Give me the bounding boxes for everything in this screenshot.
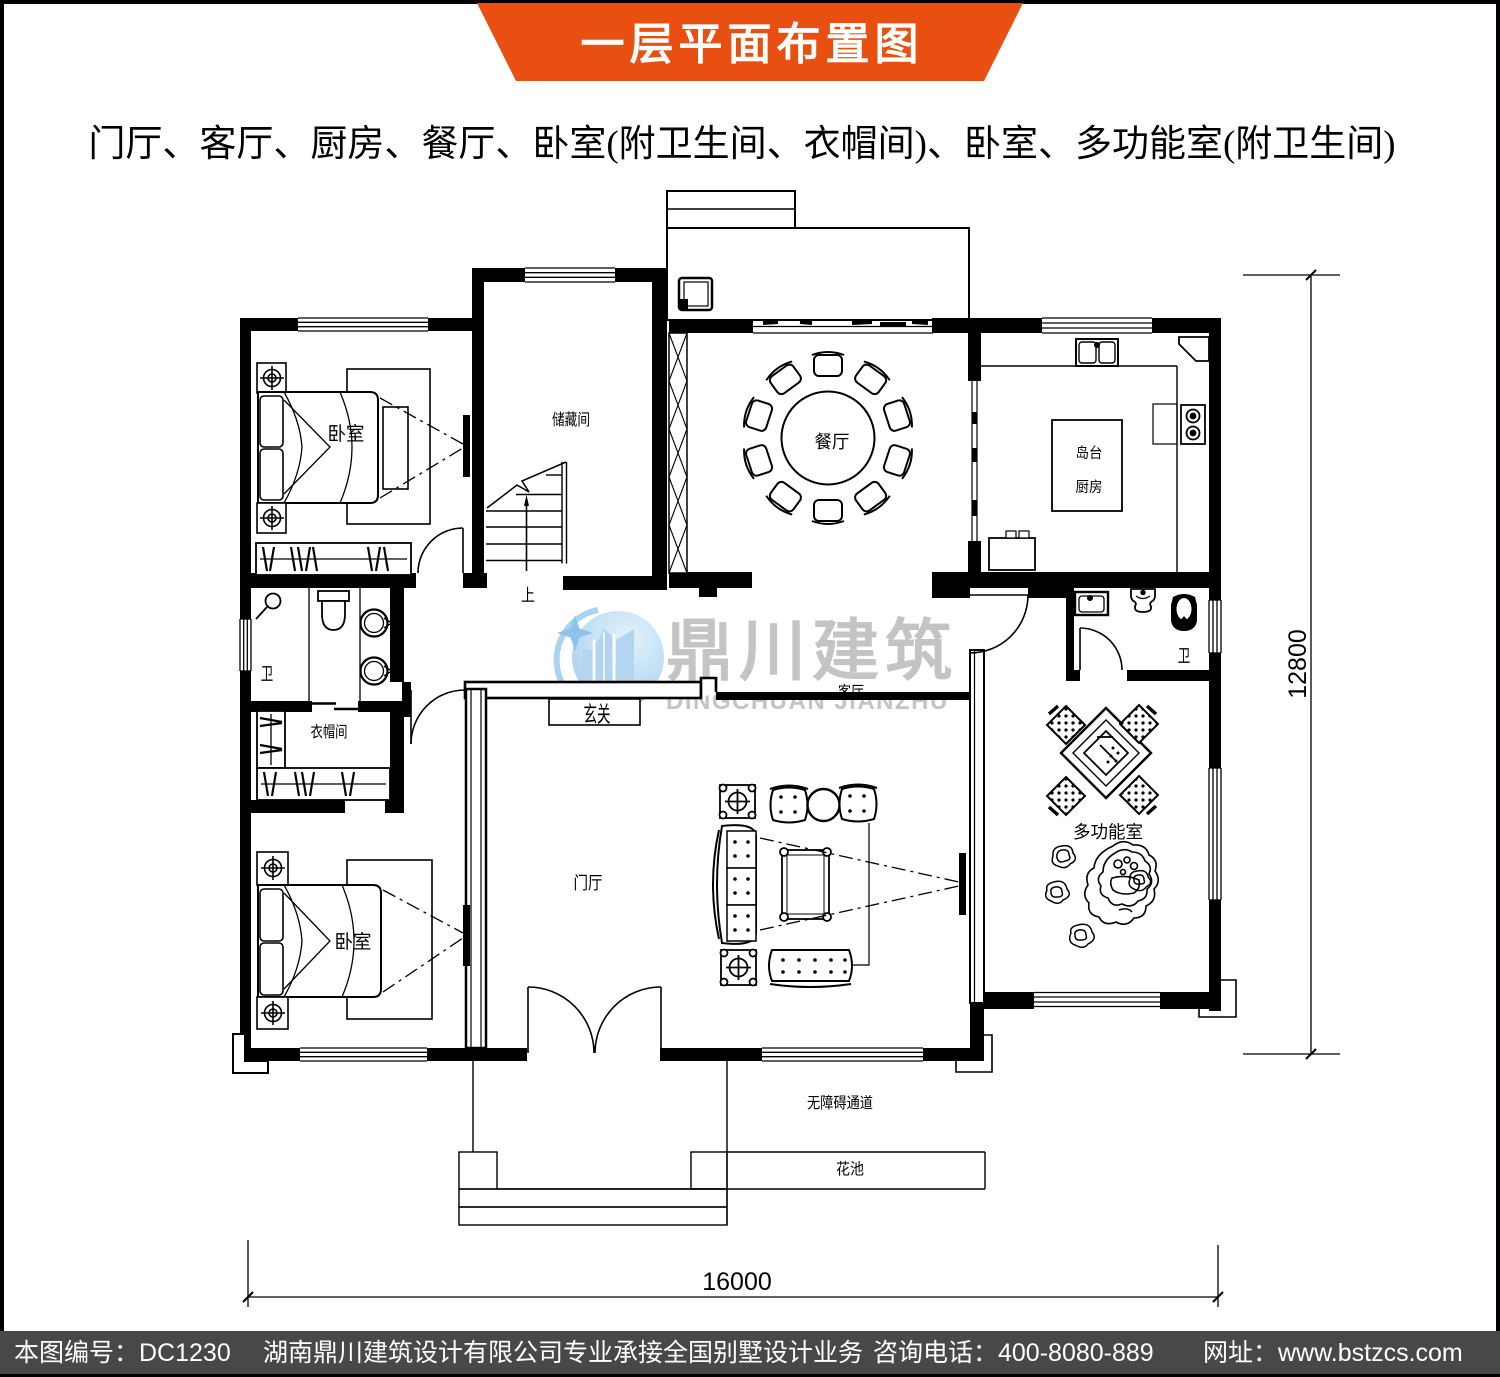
svg-text:无障碍通道: 无障碍通道 — [807, 1094, 873, 1112]
svg-text:网址：www.bstzcs.com: 网址：www.bstzcs.com — [1203, 1339, 1463, 1367]
svg-text:花池: 花池 — [836, 1160, 864, 1178]
svg-text:餐厅: 餐厅 — [815, 432, 850, 452]
svg-text:多功能室: 多功能室 — [1073, 822, 1143, 842]
svg-text:衣帽间: 衣帽间 — [311, 723, 348, 741]
svg-text:客厅: 客厅 — [838, 683, 864, 701]
svg-text:12800: 12800 — [1284, 629, 1312, 699]
svg-text:储藏间: 储藏间 — [552, 411, 590, 429]
svg-text:厨房: 厨房 — [1076, 479, 1103, 496]
svg-text:玄关: 玄关 — [584, 702, 611, 727]
svg-text:卫: 卫 — [1178, 646, 1191, 666]
svg-text:卧室: 卧室 — [335, 931, 372, 953]
svg-text:本图编号：DC1230: 本图编号：DC1230 — [14, 1339, 231, 1367]
svg-text:咨询电话：400-8080-889: 咨询电话：400-8080-889 — [873, 1339, 1154, 1367]
svg-text:上: 上 — [521, 586, 535, 605]
svg-text:湖南鼎川建筑设计有限公司专业承接全国别墅设计业务: 湖南鼎川建筑设计有限公司专业承接全国别墅设计业务 — [263, 1339, 863, 1367]
svg-text:卧室: 卧室 — [328, 423, 365, 445]
svg-text:门厅、客厅、厨房、餐厅、卧室(附卫生间、衣帽间)、卧室、多功: 门厅、客厅、厨房、餐厅、卧室(附卫生间、衣帽间)、卧室、多功能室(附卫生间) — [88, 123, 1395, 165]
svg-text:门厅: 门厅 — [574, 873, 603, 893]
svg-text:16000: 16000 — [702, 1268, 772, 1296]
svg-text:岛台: 岛台 — [1076, 445, 1103, 462]
svg-text:卫: 卫 — [261, 664, 274, 684]
svg-text:一层平面布置图: 一层平面布置图 — [581, 20, 924, 69]
